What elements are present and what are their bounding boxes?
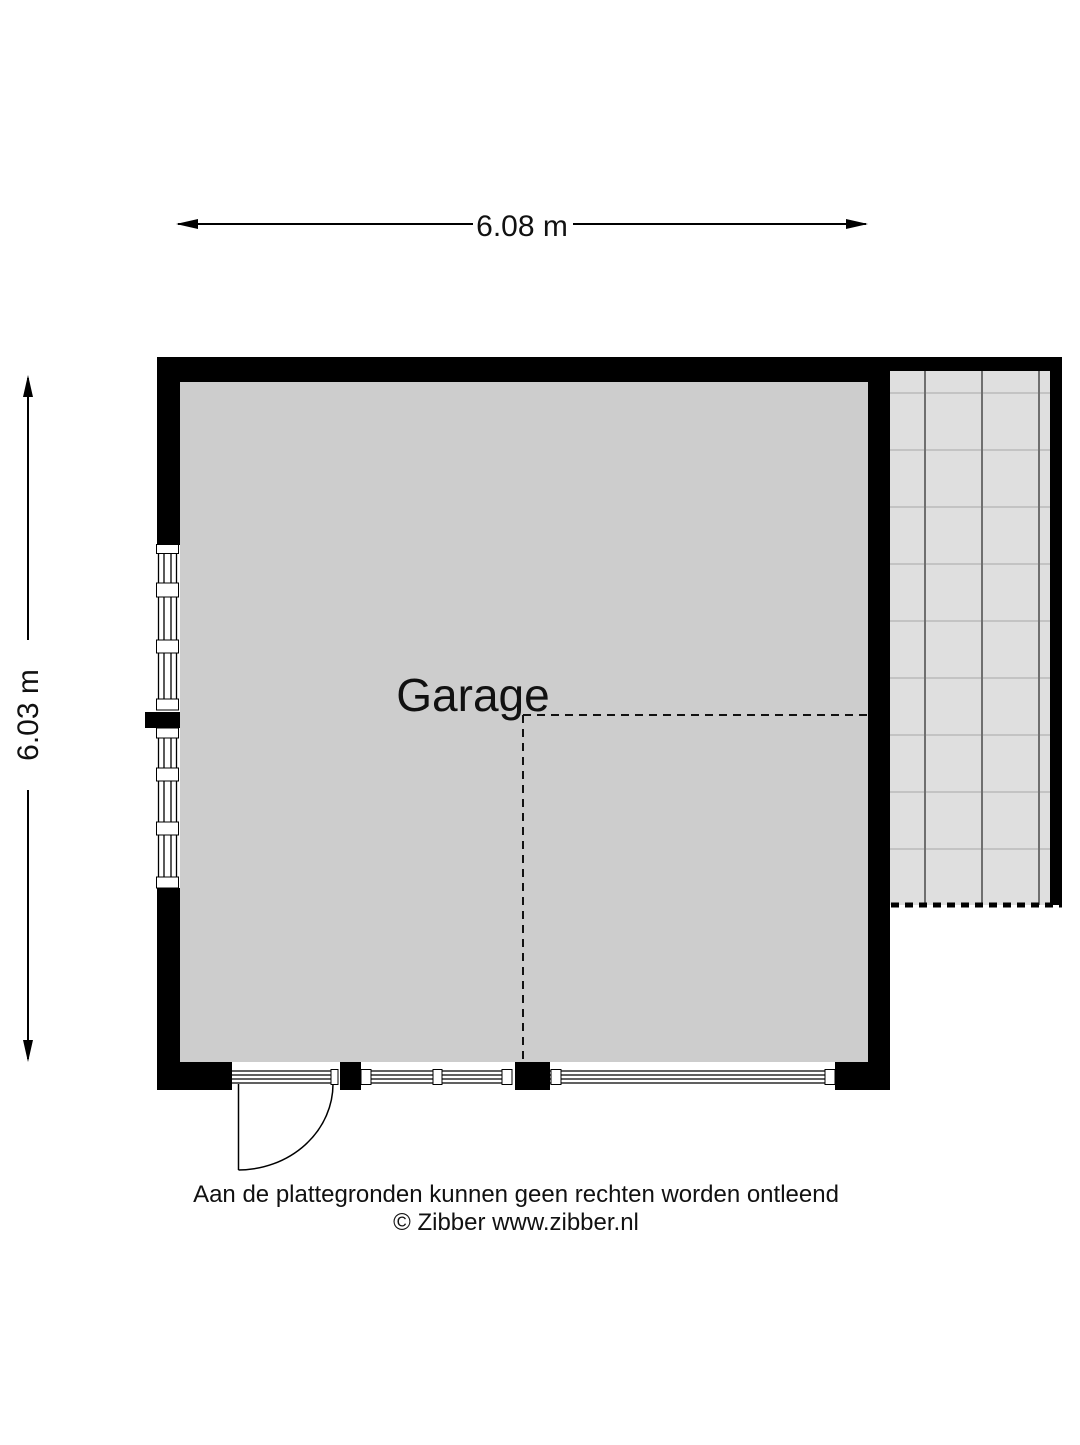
wall-bottom-pier-2 xyxy=(515,1062,550,1090)
wall-right xyxy=(868,357,890,1090)
wall-canopy-top xyxy=(890,357,1062,371)
canopy-grid-area xyxy=(890,371,1062,905)
wall-bottom-pier-1 xyxy=(340,1062,361,1090)
wall-canopy-right xyxy=(1050,357,1062,905)
room-label: Garage xyxy=(396,669,549,721)
floor-plan-page: Garage 6.08 m 6.03 m Aan de plattegronde… xyxy=(0,0,1080,1440)
wall-left-bottom xyxy=(157,888,180,1090)
footer-copyright: © Zibber www.zibber.nl xyxy=(393,1209,639,1236)
floor-plan-svg: Garage 6.08 m 6.03 m Aan de plattegronde… xyxy=(0,0,1080,1440)
wall-bottom-left-corner xyxy=(157,1062,232,1090)
height-dimension-label: 6.03 m xyxy=(12,669,45,761)
wall-bottom-right-corner xyxy=(835,1062,890,1090)
footer-disclaimer: Aan de plattegronden kunnen geen rechten… xyxy=(193,1181,839,1208)
wall-top xyxy=(157,357,890,382)
width-dimension-label: 6.08 m xyxy=(476,210,568,243)
canopy-floor xyxy=(890,371,1050,905)
wall-left-pier xyxy=(145,712,180,728)
wall-left-top xyxy=(157,357,180,545)
